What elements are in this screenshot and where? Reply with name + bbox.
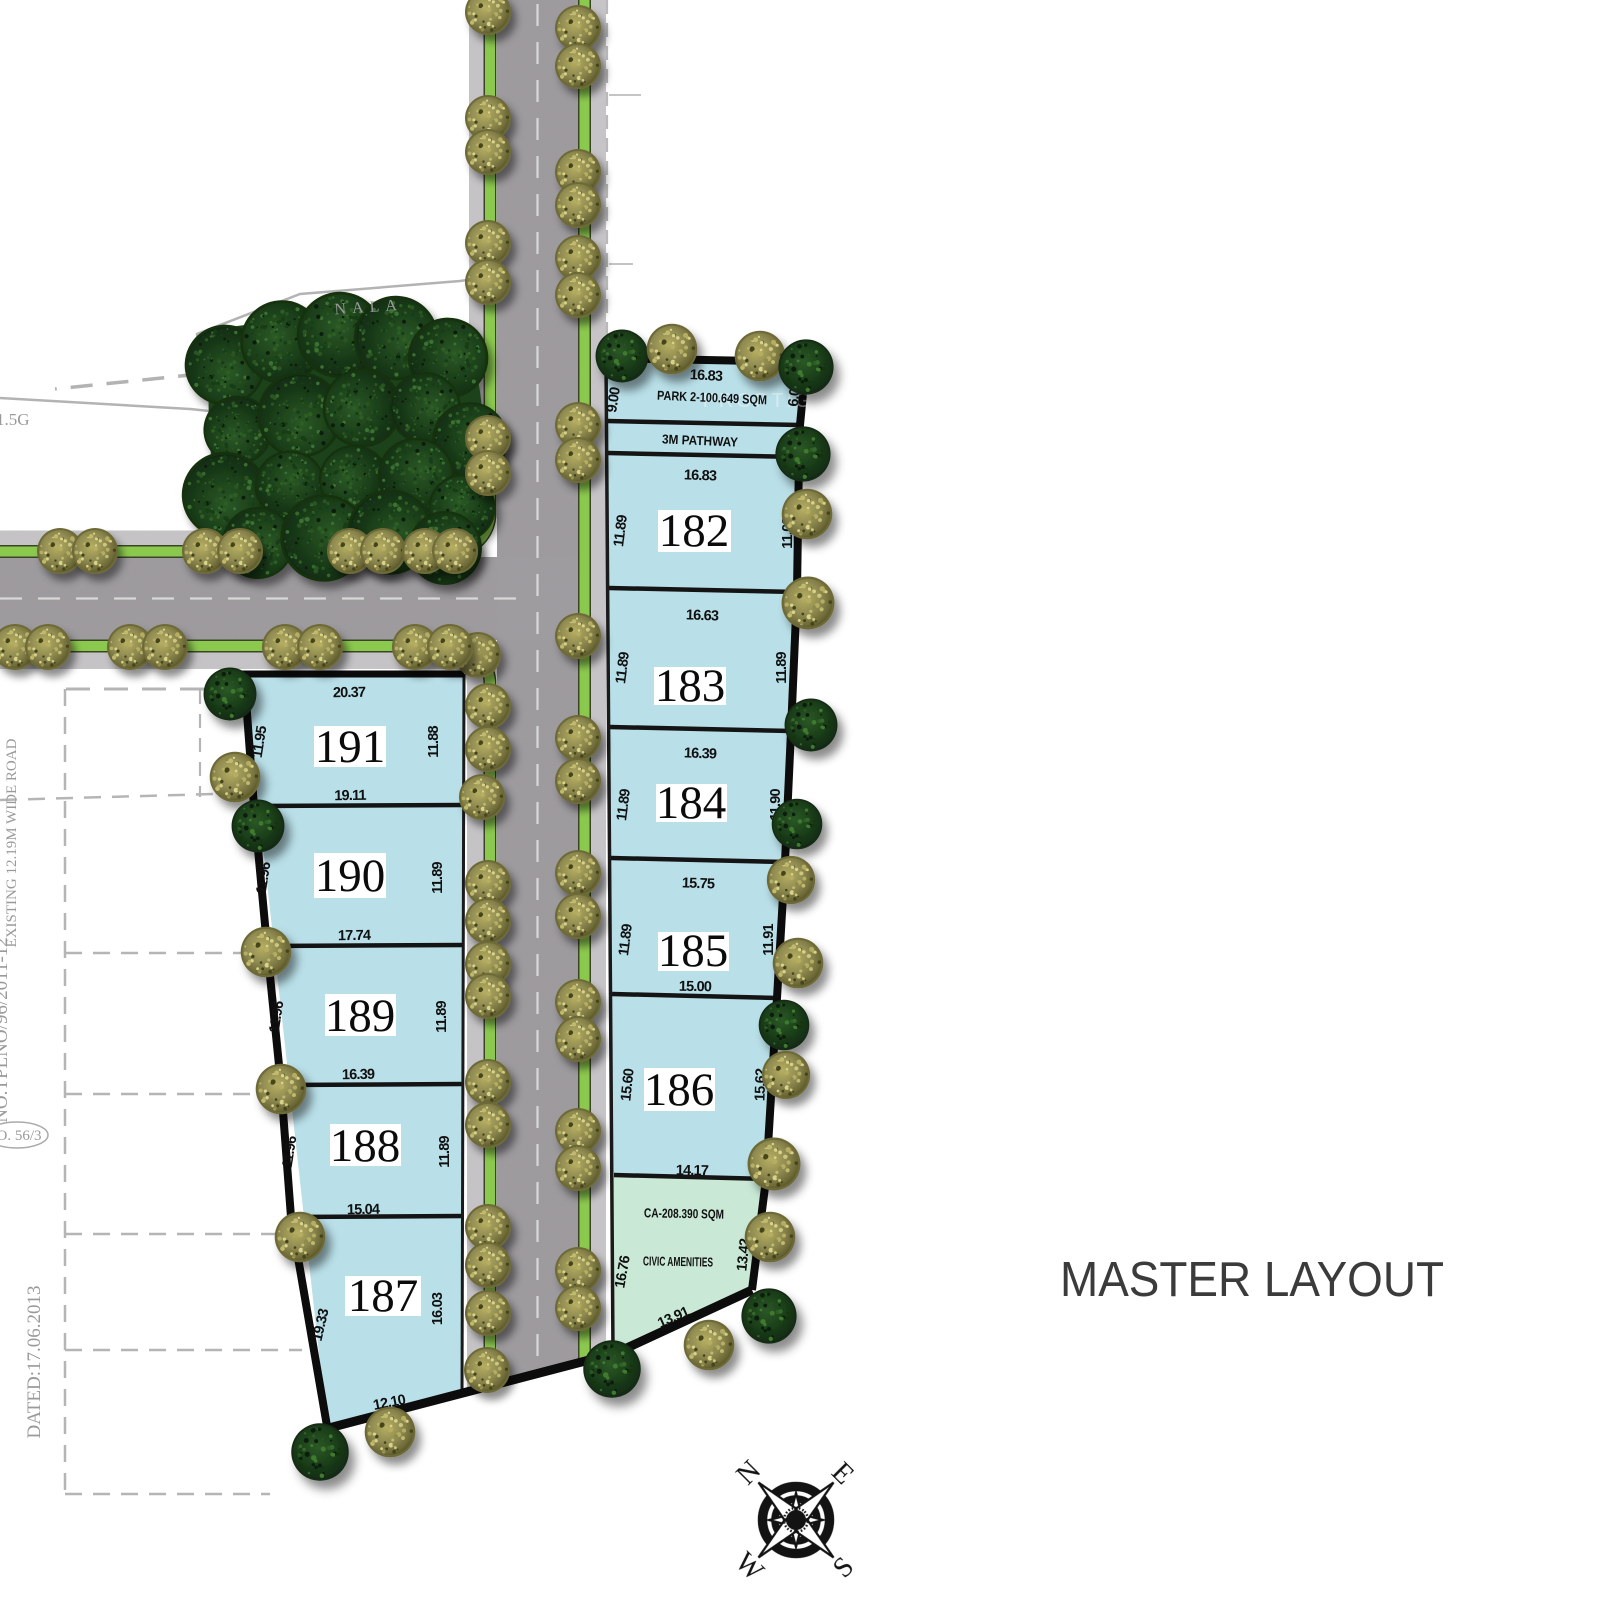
svg-text:11.88: 11.88 bbox=[426, 726, 442, 758]
svg-text:191: 191 bbox=[315, 721, 386, 773]
svg-text:MASTER LAYOUT: MASTER LAYOUT bbox=[1060, 1253, 1444, 1307]
svg-text:11.91: 11.91 bbox=[761, 924, 777, 956]
svg-text:15.75: 15.75 bbox=[682, 875, 716, 892]
svg-text:190: 190 bbox=[315, 850, 386, 902]
svg-text:EXISTING 12.19M WIDE ROAD: EXISTING 12.19M WIDE ROAD bbox=[4, 738, 20, 947]
svg-text:183: 183 bbox=[655, 660, 726, 712]
svg-text:15.00: 15.00 bbox=[679, 979, 712, 996]
svg-text:11.89: 11.89 bbox=[437, 1136, 453, 1168]
svg-text:182: 182 bbox=[659, 505, 730, 557]
svg-text:16.83: 16.83 bbox=[689, 367, 723, 385]
svg-text:11.89: 11.89 bbox=[430, 862, 446, 894]
svg-text:186: 186 bbox=[644, 1064, 715, 1116]
svg-text:185: 185 bbox=[658, 925, 729, 977]
svg-text:O. 56/3: O. 56/3 bbox=[0, 1128, 42, 1144]
svg-text:16.63: 16.63 bbox=[686, 607, 720, 624]
svg-text:CA-208.390 SQM: CA-208.390 SQM bbox=[644, 1205, 724, 1221]
svg-text:188: 188 bbox=[330, 1120, 401, 1172]
svg-text:184: 184 bbox=[656, 777, 727, 829]
svg-text:CIVIC AMENITIES: CIVIC AMENITIES bbox=[643, 1253, 713, 1269]
svg-text:11.89: 11.89 bbox=[774, 652, 790, 684]
svg-text:14.17: 14.17 bbox=[676, 1163, 709, 1180]
svg-text:16.39: 16.39 bbox=[684, 745, 718, 762]
svg-text:20.37: 20.37 bbox=[333, 685, 366, 702]
svg-text:NO.TPLNO/96/2011-12: NO.TPLNO/96/2011-12 bbox=[0, 937, 12, 1123]
svg-text:15.04: 15.04 bbox=[347, 1202, 380, 1219]
svg-text:19.11: 19.11 bbox=[334, 788, 366, 805]
svg-text:16.83: 16.83 bbox=[684, 467, 718, 484]
svg-text:DATED:17.06.2013: DATED:17.06.2013 bbox=[24, 1285, 45, 1438]
svg-text:187: 187 bbox=[348, 1270, 419, 1322]
svg-text:17.74: 17.74 bbox=[338, 928, 371, 945]
svg-text:16.03: 16.03 bbox=[430, 1292, 446, 1325]
svg-text:1.5G: 1.5G bbox=[0, 410, 30, 429]
svg-text:11.89: 11.89 bbox=[434, 1001, 450, 1033]
svg-text:189: 189 bbox=[325, 990, 396, 1042]
svg-text:16.39: 16.39 bbox=[342, 1067, 375, 1084]
